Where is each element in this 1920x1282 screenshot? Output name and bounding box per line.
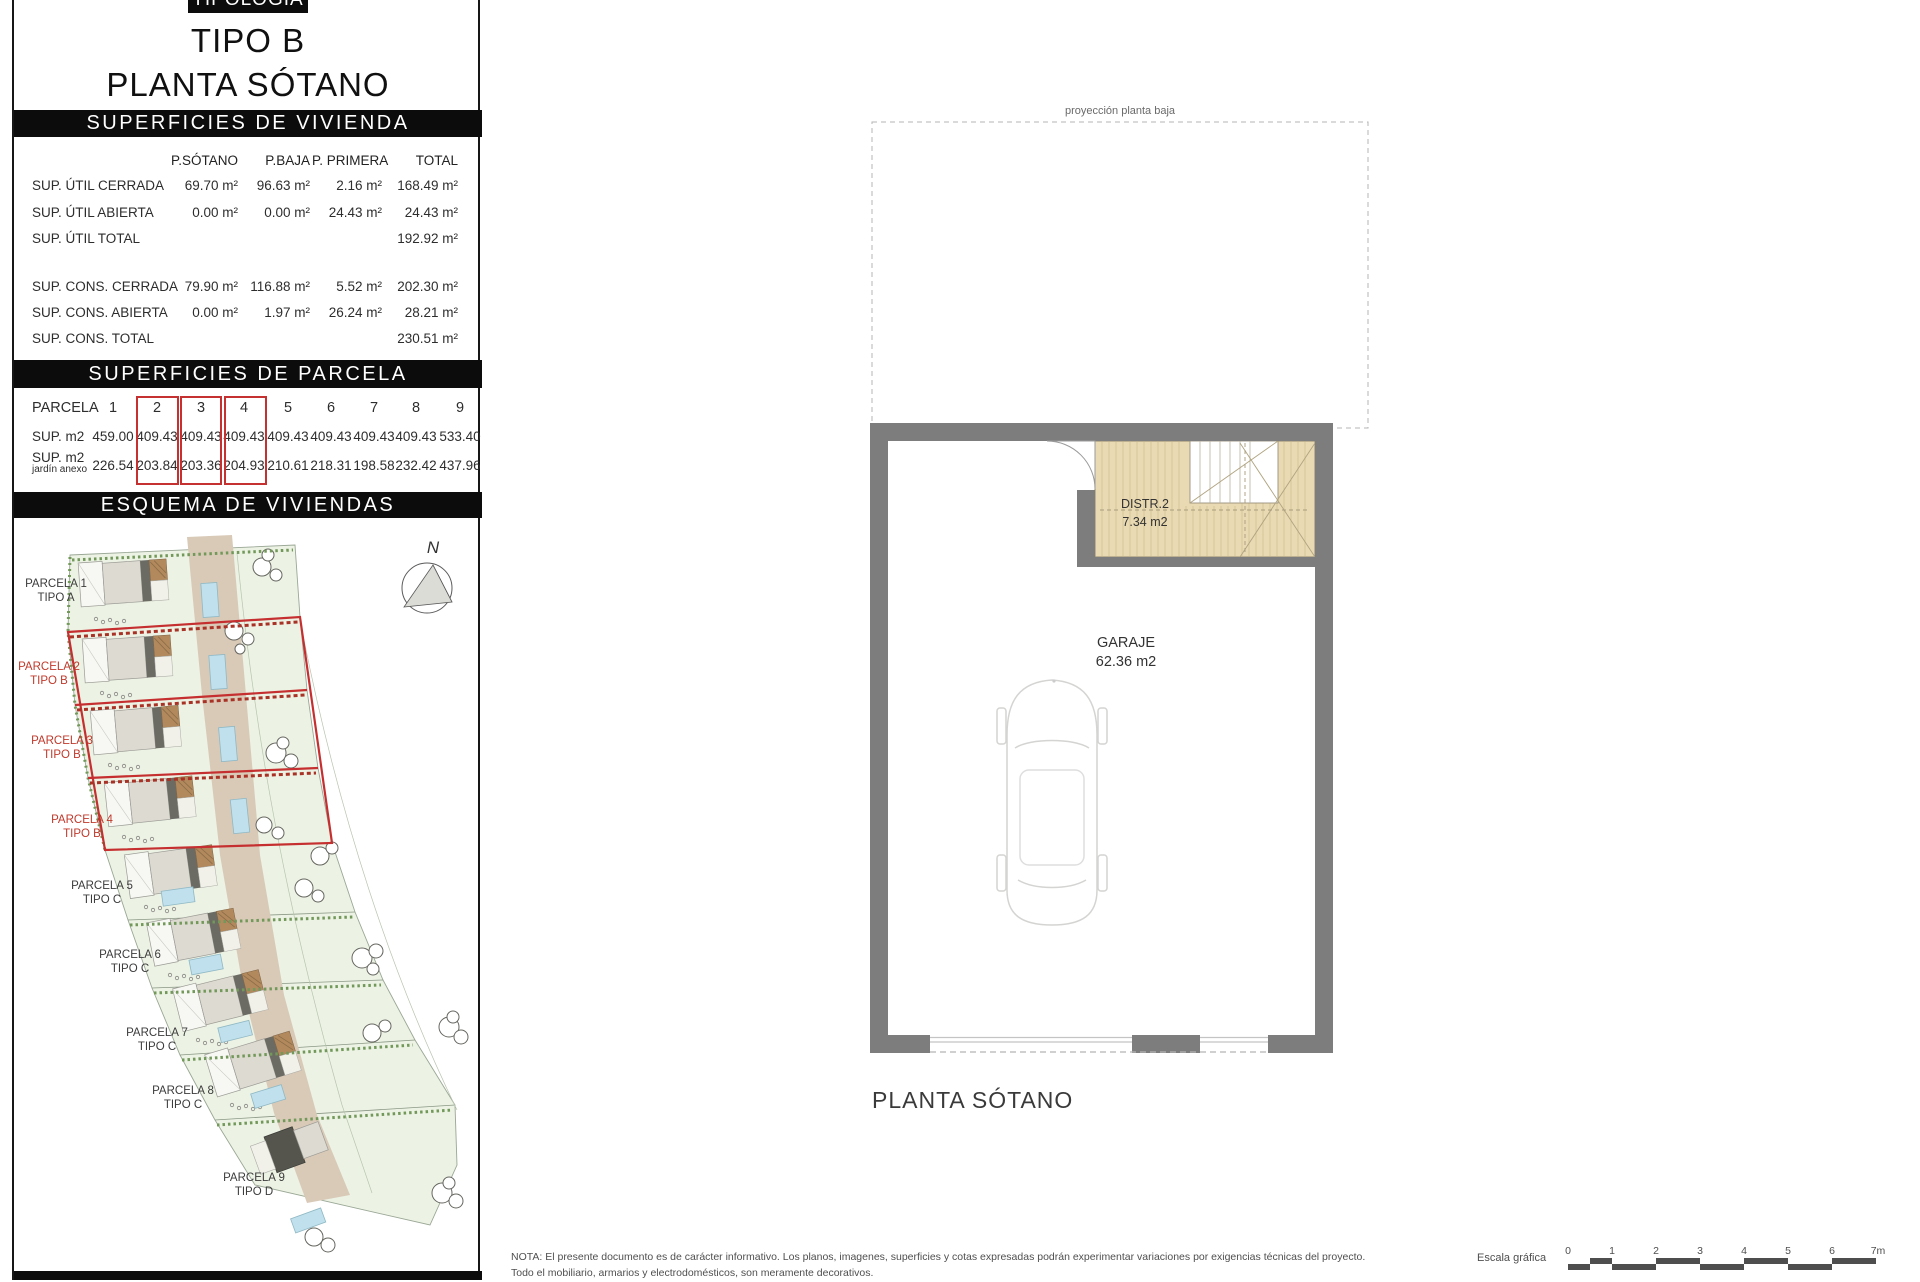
row-label: SUP. ÚTIL ABIERTA [32, 205, 154, 220]
panel-bottom-bar [14, 1271, 482, 1280]
highlight-box-parcela-3 [180, 396, 222, 485]
label-parcela-4: PARCELA 4 [51, 814, 113, 826]
floor-plan: proyección planta baja [850, 80, 1920, 1200]
car-icon [997, 679, 1107, 925]
label-parcela-3: PARCELA 3 [31, 735, 93, 747]
stairs-distr2: DISTR.2 7.34 m2 [1095, 441, 1315, 557]
cell: 24.43 m² [312, 205, 382, 220]
section-header-esquema: ESQUEMA DE VIVIENDAS [14, 492, 482, 518]
label-tipo-7: TIPO C [138, 1041, 176, 1053]
section-header-vivienda: SUPERFICIES DE VIVIENDA [14, 110, 482, 137]
col-header-sotano: P.SÓTANO [152, 153, 238, 168]
cell: 116.88 m² [240, 279, 310, 294]
col-header-total: TOTAL [382, 153, 458, 168]
scale-tick: 4 [1741, 1245, 1747, 1257]
cell: 0.00 m² [152, 205, 238, 220]
label-tipo-6: TIPO C [111, 963, 149, 975]
highlight-box-parcela-2 [136, 396, 179, 485]
typology-header-bar: TIPOLOGÍA [188, 0, 308, 13]
label-tipo-4: TIPO B [63, 828, 101, 840]
label-tipo-9: TIPO D [235, 1186, 273, 1198]
label-tipo-1: TIPO A [37, 592, 74, 604]
floor-title: PLANTA SÓTANO [14, 66, 482, 104]
footer-note: NOTA: El presente documento es de caráct… [511, 1250, 1365, 1281]
cell: 2.16 m² [312, 178, 382, 193]
cell: 437.96 [428, 458, 492, 473]
table-row: SUP. CONS. ABIERTA 0.00 m² 1.97 m² 26.24… [14, 305, 482, 323]
vivienda-column-headers: P.SÓTANO P.BAJA P. PRIMERA TOTAL [14, 153, 482, 171]
cell: 0.00 m² [240, 205, 310, 220]
section-header-esquema-label: ESQUEMA DE VIVIENDAS [101, 494, 396, 516]
scale-tick: 2 [1653, 1245, 1659, 1257]
door-swing [1047, 441, 1095, 489]
row-label: SUP. ÚTIL TOTAL [32, 231, 140, 246]
footer-note-line1: NOTA: El presente documento es de caráct… [511, 1250, 1365, 1266]
cell: 79.90 m² [152, 279, 238, 294]
garage-area: 62.36 m2 [1096, 654, 1156, 670]
footer-note-line2: Todo el mobiliario, armarios y electrodo… [511, 1266, 1365, 1282]
table-row: SUP. ÚTIL CERRADA 69.70 m² 96.63 m² 2.16… [14, 178, 482, 196]
section-header-parcela-label: SUPERFICIES DE PARCELA [88, 363, 407, 385]
scale-bar-segments [1568, 1258, 1876, 1270]
label-parcela-8: PARCELA 8 [152, 1085, 214, 1097]
cell: 192.92 m² [382, 231, 458, 246]
scale-bar: 0 1 2 3 4 5 6 7m [1563, 1242, 1903, 1282]
cell: 168.49 m² [382, 178, 458, 193]
table-row: SUP. ÚTIL TOTAL 192.92 m² [14, 231, 482, 249]
row-label: SUP. CONS. TOTAL [32, 331, 154, 346]
label-parcela-1: PARCELA 1 [25, 578, 87, 590]
scale-tick: 5 [1785, 1245, 1791, 1257]
highlight-box-parcela-4 [224, 396, 267, 485]
label-parcela-2: PARCELA 2 [18, 661, 80, 673]
table-row: SUP. CONS. TOTAL 230.51 m² [14, 331, 482, 349]
scale-tick: 0 [1565, 1245, 1571, 1257]
table-row: SUP. ÚTIL ABIERTA 0.00 m² 0.00 m² 24.43 … [14, 205, 482, 223]
north-label: N [427, 538, 440, 557]
cell: 96.63 m² [240, 178, 310, 193]
typology-header-label: TIPOLOGÍA [192, 0, 303, 11]
row-label: SUP. ÚTIL CERRADA [32, 178, 164, 193]
distr2-area: 7.34 m2 [1122, 515, 1167, 529]
cell: 69.70 m² [152, 178, 238, 193]
label-parcela-5: PARCELA 5 [71, 880, 133, 892]
label-tipo-2: TIPO B [30, 675, 68, 687]
scale-tick: 6 [1829, 1245, 1835, 1257]
garage-label: GARAJE [1097, 635, 1155, 651]
scale-tick: 1 [1609, 1245, 1615, 1257]
cell: 26.24 m² [312, 305, 382, 320]
cell: 230.51 m² [382, 331, 458, 346]
scale-caption: Escala gráfica [1477, 1251, 1546, 1267]
cell: 5.52 m² [312, 279, 382, 294]
scale-tick: 3 [1697, 1245, 1703, 1257]
col-header-baja: P.BAJA [240, 153, 310, 168]
cell: 202.30 m² [382, 279, 458, 294]
north-compass-icon: N [402, 538, 452, 613]
projection-outline [872, 122, 1368, 428]
label-tipo-8: TIPO C [164, 1099, 202, 1111]
label-tipo-3: TIPO B [43, 749, 81, 761]
section-header-parcela: SUPERFICIES DE PARCELA [14, 360, 482, 388]
cell: 24.43 m² [382, 205, 458, 220]
label-tipo-5: TIPO C [83, 894, 121, 906]
projection-label: proyección planta baja [1065, 105, 1176, 117]
label-parcela-7: PARCELA 7 [126, 1027, 188, 1039]
col-header-primera: P. PRIMERA [312, 153, 382, 168]
cell: 0.00 m² [152, 305, 238, 320]
site-plan: PARCELA 1 TIPO A PARCELA 2 TIPO B PARCEL… [12, 525, 480, 1271]
section-header-vivienda-label: SUPERFICIES DE VIVIENDA [86, 112, 409, 134]
cell: 1.97 m² [240, 305, 310, 320]
scale-tick: 7m [1871, 1245, 1886, 1257]
plan-sheet: { "panel": { "top_bar": "TIPOLOGÍA", "ti… [0, 0, 1920, 1280]
cell: 28.21 m² [382, 305, 458, 320]
parcela-number: 9 [428, 400, 492, 416]
label-parcela-9: PARCELA 9 [223, 1172, 285, 1184]
cell: 533.40 [428, 429, 492, 444]
scale-tick-labels: 0 1 2 3 4 5 6 7m [1565, 1245, 1885, 1257]
table-row: SUP. CONS. CERRADA 79.90 m² 116.88 m² 5.… [14, 279, 482, 297]
type-title: TIPO B [14, 22, 482, 60]
row-label: SUP. m2 [32, 429, 84, 444]
label-parcela-6: PARCELA 6 [99, 949, 161, 961]
row-label: SUP. CONS. ABIERTA [32, 305, 168, 320]
distr2-label: DISTR.2 [1121, 497, 1169, 511]
garage-door-lines [930, 1038, 1268, 1043]
plan-title: PLANTA SÓTANO [872, 1087, 1073, 1113]
